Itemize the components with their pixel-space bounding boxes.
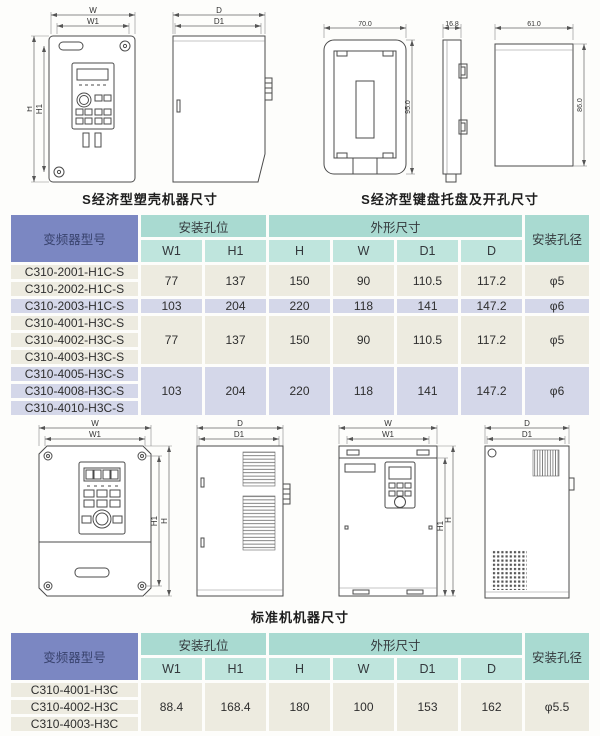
perforated-vent <box>491 550 527 590</box>
col-header-w1: W1 <box>141 658 202 680</box>
dim-label-h: H <box>160 518 169 524</box>
model-cell: C310-4001-H3C-S <box>11 316 138 330</box>
standard-dimensions-table: 变频器型号安装孔位外形尺寸安装孔径W1H1HWD1DC310-4001-H3C8… <box>8 630 592 734</box>
dim-label-h: H <box>444 517 453 523</box>
value-cell: 141 <box>397 367 458 415</box>
value-cell: 204 <box>205 367 266 415</box>
value-cell: 90 <box>333 316 394 364</box>
table-row: C310-4005-H3C-S103204220118141147.2φ6 <box>11 367 589 381</box>
col-header-d: D <box>461 240 522 262</box>
dim-label-w: W <box>89 6 97 15</box>
value-cell: 103 <box>141 299 202 313</box>
dim-label-w: W <box>91 420 99 428</box>
model-cell: C310-2002-H1C-S <box>11 282 138 296</box>
value-cell: 150 <box>269 316 330 364</box>
drawing-cabinet-side: D D1 <box>471 420 579 604</box>
heatsink-fins <box>533 450 559 476</box>
col-header-hole-diameter: 安装孔径 <box>525 633 589 680</box>
col-header-d: D <box>461 658 522 680</box>
drawing-s-front-view: W W1 H H1 <box>27 6 139 188</box>
model-cell: C310-4003-H3C-S <box>11 350 138 364</box>
caption-s-keypad-tray: S经济型键盘托盘及开孔尺寸 <box>300 190 600 212</box>
col-header-d1: D1 <box>397 240 458 262</box>
figure-s-keypad-tray: 70.0 95.0 16.8 <box>300 6 600 186</box>
value-cell: 118 <box>333 299 394 313</box>
value-cell: 137 <box>205 316 266 364</box>
model-cell: C310-4002-H3C <box>11 700 138 714</box>
drawing-tray-front: 70.0 95.0 <box>309 18 417 186</box>
value-cell: 117.2 <box>461 265 522 296</box>
drawing-standard-front: W W1 <box>21 420 173 604</box>
value-cell: 117.2 <box>461 316 522 364</box>
value-cell: 141 <box>397 299 458 313</box>
dim-label-w1: W1 <box>382 430 395 439</box>
table-row: C310-2001-H1C-S7713715090110.5117.2φ5 <box>11 265 589 279</box>
figure-standard-machine-large: W W1 H1 <box>323 420 579 604</box>
value-cell: φ6 <box>525 367 589 415</box>
dim-label-tray-height: 95.0 <box>405 100 412 114</box>
dim-label-h1: H1 <box>35 103 44 114</box>
model-cell: C310-4002-H3C-S <box>11 333 138 347</box>
dim-label-tray-width: 70.0 <box>358 21 372 28</box>
col-header-mounting-holes: 安装孔位 <box>141 215 266 237</box>
value-cell: 103 <box>141 367 202 415</box>
drawing-standard-side: D D1 <box>187 420 295 604</box>
dim-label-w: W <box>384 420 392 428</box>
dim-label-tray-depth: 16.8 <box>445 21 459 28</box>
col-header-outline-dims: 外形尺寸 <box>269 215 522 237</box>
dim-label-h: H <box>27 106 34 112</box>
col-header-model: 变频器型号 <box>11 633 138 680</box>
value-cell: 162 <box>461 683 522 731</box>
model-cell: C310-2001-H1C-S <box>11 265 138 279</box>
dim-label-d: D <box>216 6 222 15</box>
drawing-tray-side: 16.8 <box>429 18 475 186</box>
model-cell: C310-4001-H3C <box>11 683 138 697</box>
value-cell: 220 <box>269 299 330 313</box>
value-cell: 77 <box>141 316 202 364</box>
dim-label-d1: D1 <box>234 430 245 439</box>
value-cell: 180 <box>269 683 330 731</box>
value-cell: 118 <box>333 367 394 415</box>
model-cell: C310-2003-H1C-S <box>11 299 138 313</box>
dim-label-h1: H1 <box>150 515 159 526</box>
col-header-h: H <box>269 658 330 680</box>
value-cell: 220 <box>269 367 330 415</box>
value-cell: 153 <box>397 683 458 731</box>
drawing-cabinet-front: W W1 H1 <box>323 420 457 604</box>
table-row: C310-2003-H1C-S103204220118141147.2φ6 <box>11 299 589 313</box>
dim-label-d: D <box>524 420 530 428</box>
col-header-model: 变频器型号 <box>11 215 138 262</box>
dim-label-w1: W1 <box>89 430 102 439</box>
dim-label-d1: D1 <box>214 17 225 26</box>
value-cell: 204 <box>205 299 266 313</box>
dim-label-d1: D1 <box>522 430 533 439</box>
s-series-dimensions-table: 变频器型号安装孔位外形尺寸安装孔径W1H1HWD1DC310-2001-H1C-… <box>8 212 592 418</box>
value-cell: 168.4 <box>205 683 266 731</box>
drawing-panel-cutout: 61.0 86.0 <box>487 18 591 186</box>
manual-page: W W1 H H1 <box>0 0 600 736</box>
value-cell: 110.5 <box>397 316 458 364</box>
dim-label-cutout-width: 61.0 <box>527 21 541 28</box>
col-header-d1: D1 <box>397 658 458 680</box>
col-header-w1: W1 <box>141 240 202 262</box>
vent-grille <box>243 452 275 486</box>
figure-standard-machine-small: W W1 <box>21 420 295 604</box>
table-row: C310-4001-H3C88.4168.4180100153162φ5.5 <box>11 683 589 697</box>
value-cell: 88.4 <box>141 683 202 731</box>
caption-s-plastic-case: S经济型塑壳机器尺寸 <box>0 190 300 212</box>
value-cell: 77 <box>141 265 202 296</box>
value-cell: φ5 <box>525 316 589 364</box>
table-row: C310-4001-H3C-S7713715090110.5117.2φ5 <box>11 316 589 330</box>
model-cell: C310-4005-H3C-S <box>11 367 138 381</box>
value-cell: φ5.5 <box>525 683 589 731</box>
value-cell: 100 <box>333 683 394 731</box>
col-header-h: H <box>269 240 330 262</box>
col-header-w: W <box>333 240 394 262</box>
model-cell: C310-4010-H3C-S <box>11 401 138 415</box>
caption-standard-machine: 标准机机器尺寸 <box>0 608 600 630</box>
value-cell: φ6 <box>525 299 589 313</box>
col-header-w: W <box>333 658 394 680</box>
col-header-mounting-holes: 安装孔位 <box>141 633 266 655</box>
model-cell: C310-4008-H3C-S <box>11 384 138 398</box>
value-cell: 147.2 <box>461 299 522 313</box>
top-drawings-row: W W1 H H1 <box>0 0 600 190</box>
middle-drawings-row: W W1 <box>0 418 600 608</box>
model-cell: C310-4003-H3C <box>11 717 138 731</box>
value-cell: 137 <box>205 265 266 296</box>
dim-label-d: D <box>237 420 243 428</box>
value-cell: 147.2 <box>461 367 522 415</box>
top-captions: S经济型塑壳机器尺寸 S经济型键盘托盘及开孔尺寸 <box>0 190 600 212</box>
col-header-outline-dims: 外形尺寸 <box>269 633 522 655</box>
dim-label-cutout-height: 86.0 <box>577 98 584 112</box>
value-cell: 150 <box>269 265 330 296</box>
dim-label-w1: W1 <box>87 17 100 26</box>
col-header-h1: H1 <box>205 658 266 680</box>
figure-s-economy-machine: W W1 H H1 <box>0 6 300 188</box>
col-header-h1: H1 <box>205 240 266 262</box>
vent-grille <box>243 496 275 550</box>
value-cell: 90 <box>333 265 394 296</box>
value-cell: 110.5 <box>397 265 458 296</box>
value-cell: φ5 <box>525 265 589 296</box>
drawing-s-side-view: D D1 <box>161 6 273 188</box>
col-header-hole-diameter: 安装孔径 <box>525 215 589 262</box>
